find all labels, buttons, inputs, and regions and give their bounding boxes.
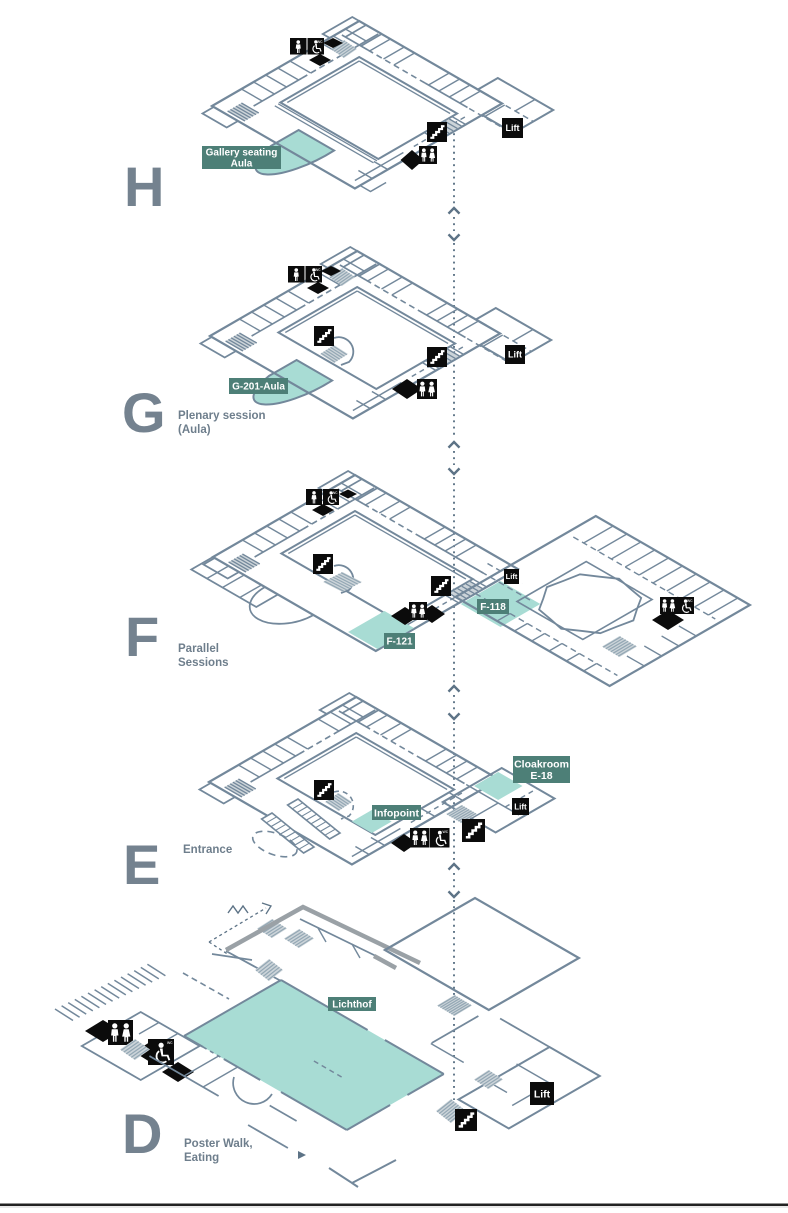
svg-text:wc: wc <box>315 267 321 272</box>
svg-text:E-18: E-18 <box>530 770 552 782</box>
svg-text:Lift: Lift <box>506 572 518 581</box>
svg-text:wc: wc <box>167 1040 173 1045</box>
svg-text:wc: wc <box>332 490 338 495</box>
svg-text:Lift: Lift <box>514 802 527 811</box>
svg-text:F: F <box>125 605 159 668</box>
svg-text:Infopoint: Infopoint <box>374 807 419 819</box>
svg-text:F-121: F-121 <box>386 637 413 648</box>
svg-text:wc: wc <box>687 598 693 603</box>
svg-text:E: E <box>123 833 160 896</box>
svg-text:Lift: Lift <box>534 1088 551 1100</box>
svg-text:Lift: Lift <box>508 350 522 360</box>
svg-text:Lift: Lift <box>506 123 520 133</box>
svg-text:Poster Walk,: Poster Walk, <box>184 1138 253 1150</box>
svg-text:Aula: Aula <box>231 159 253 170</box>
svg-text:wc: wc <box>443 829 449 834</box>
svg-text:H: H <box>124 155 164 218</box>
svg-text:Lichthof: Lichthof <box>332 1000 372 1011</box>
svg-text:D: D <box>122 1102 162 1165</box>
svg-text:Eating: Eating <box>184 1152 219 1164</box>
svg-text:Gallery seating: Gallery seating <box>206 148 278 159</box>
svg-text:Plenary session: Plenary session <box>178 410 266 422</box>
svg-text:G: G <box>122 381 166 444</box>
svg-text:Entrance: Entrance <box>183 844 232 856</box>
svg-text:G-201-Aula: G-201-Aula <box>232 382 285 393</box>
svg-text:F-118: F-118 <box>480 602 506 613</box>
svg-text:Parallel: Parallel <box>178 643 219 655</box>
svg-text:Cloakroom: Cloakroom <box>514 759 569 771</box>
svg-text:Sessions: Sessions <box>178 657 229 669</box>
svg-text:wc: wc <box>317 39 323 44</box>
svg-text:(Aula): (Aula) <box>178 424 211 436</box>
